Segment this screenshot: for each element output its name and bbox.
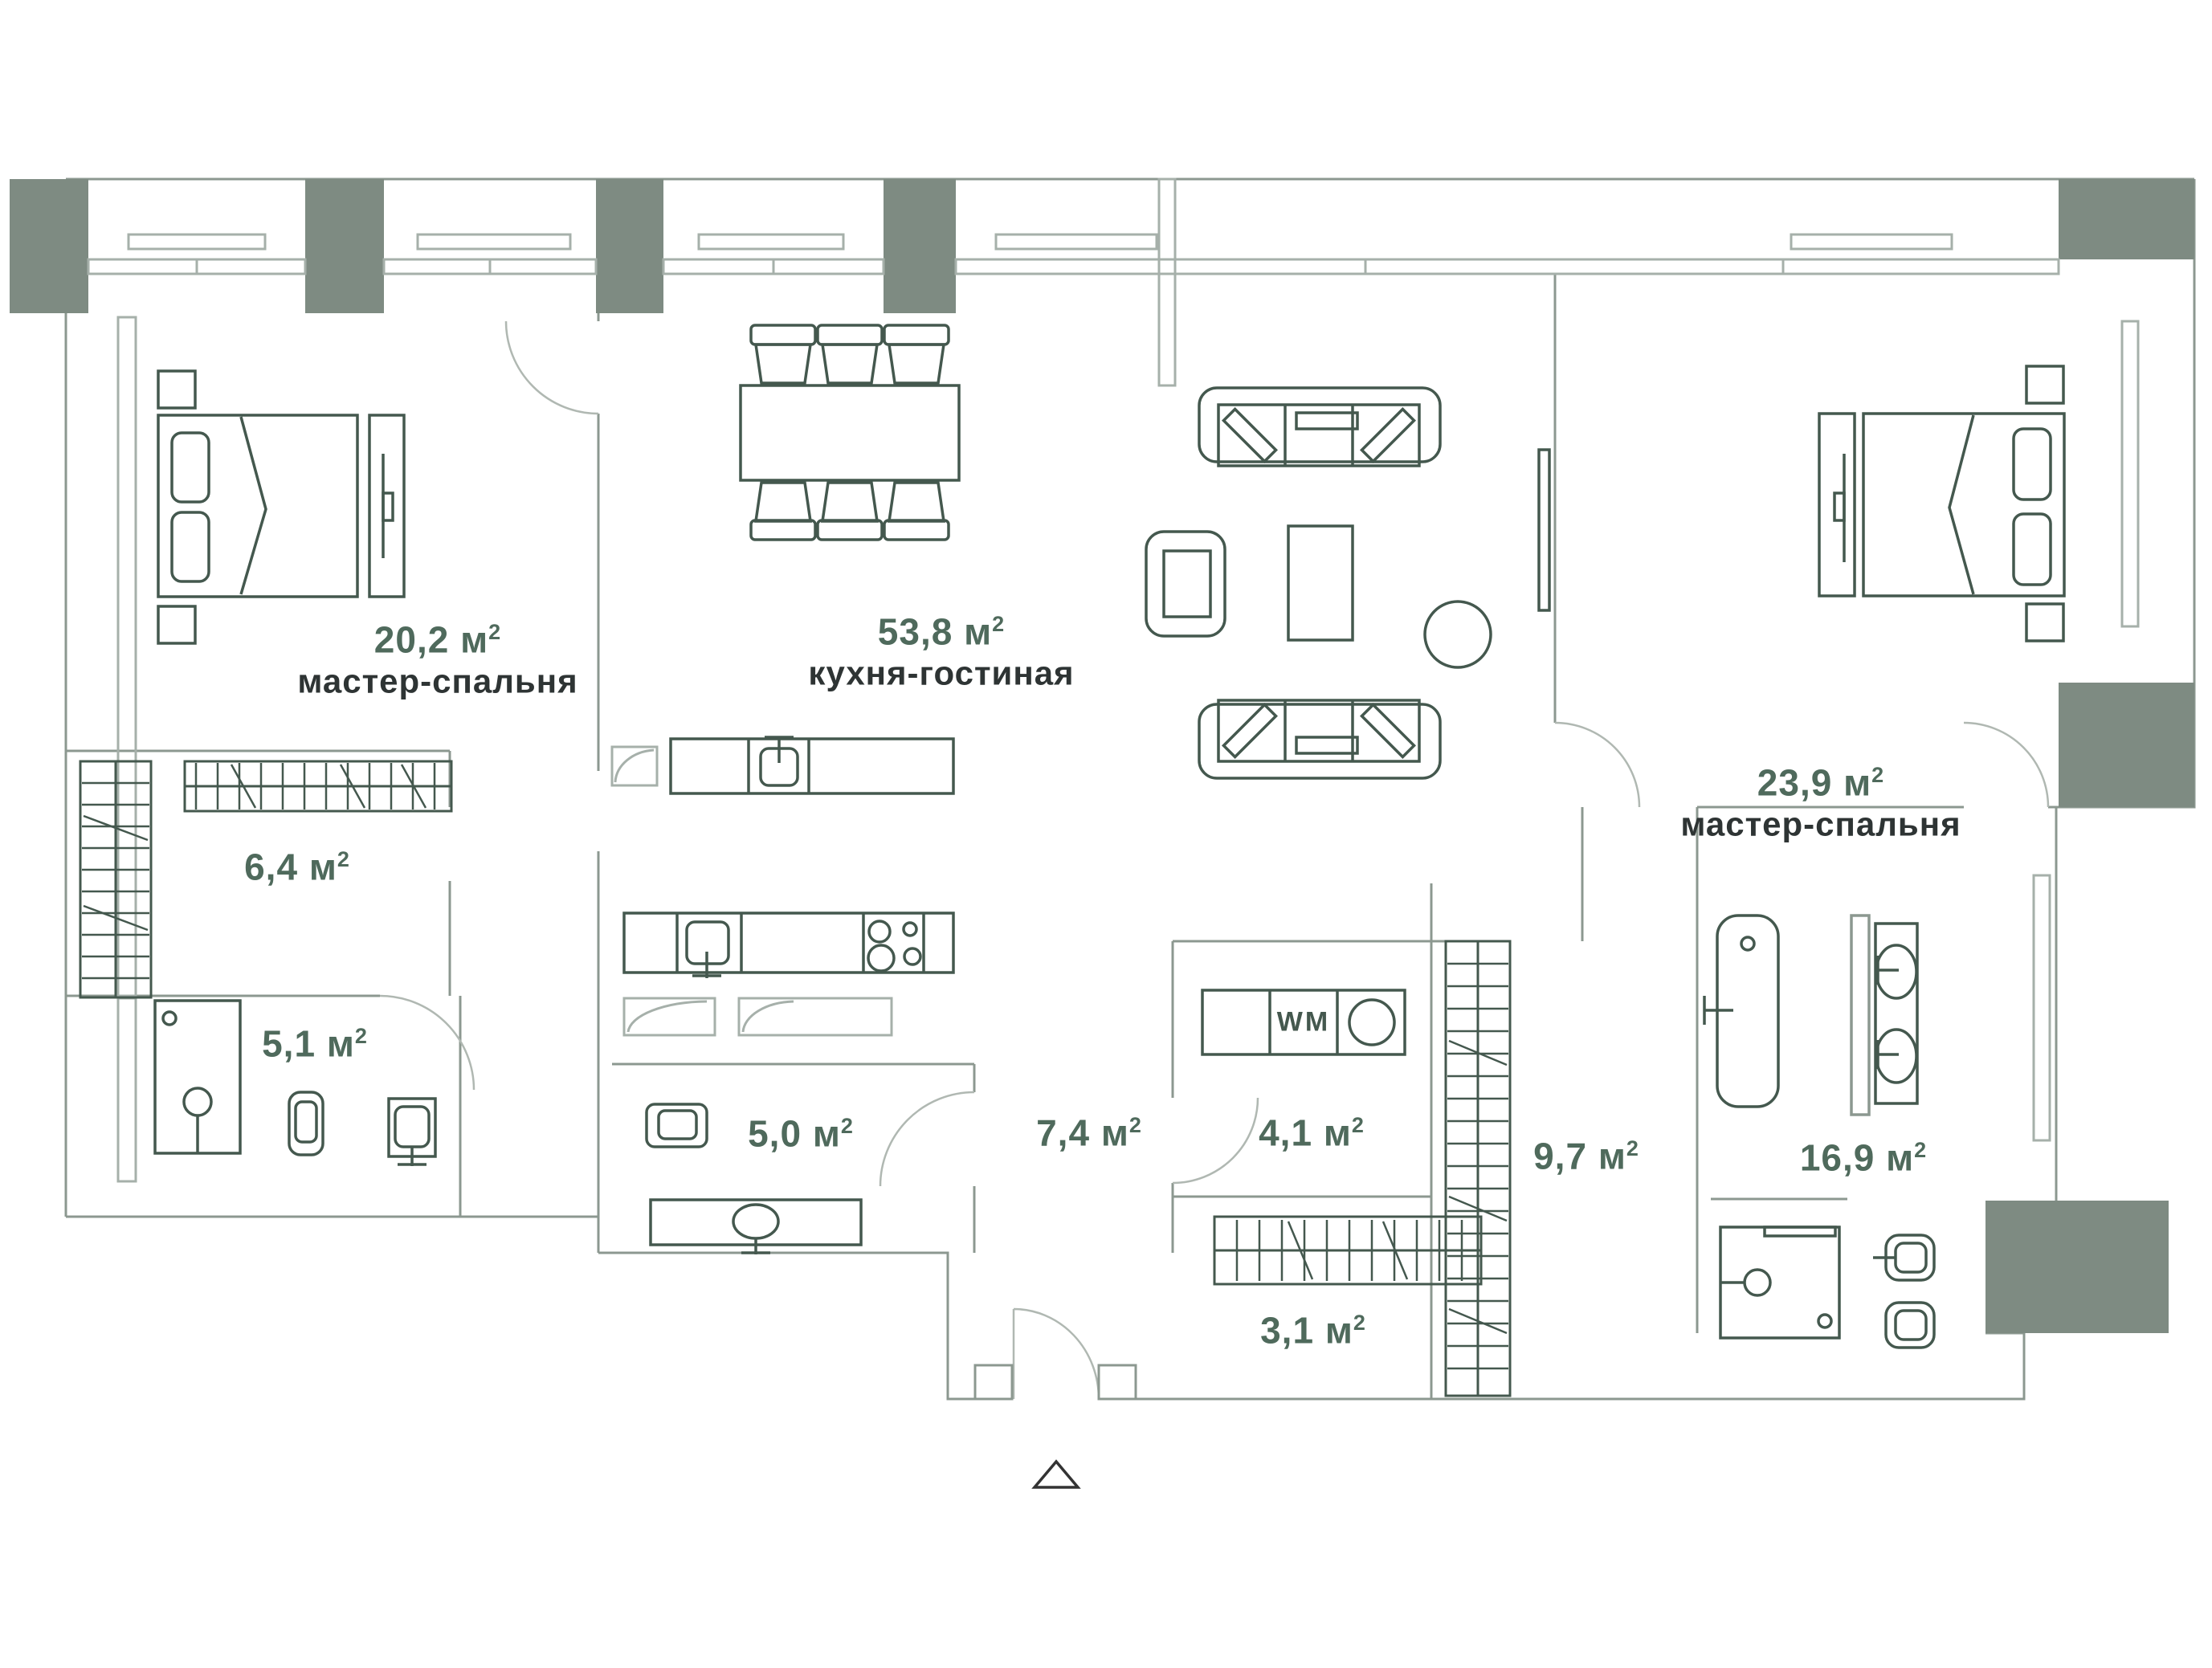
pillar	[305, 179, 384, 313]
window-left	[118, 317, 136, 996]
entrance-door-stubs	[975, 1365, 1136, 1399]
vanity	[651, 1200, 861, 1254]
pillow	[172, 433, 209, 502]
pillar	[2059, 683, 2194, 807]
washing-machine-label: WM	[1277, 1007, 1330, 1038]
drain	[163, 1012, 176, 1025]
floor-plan-svg	[0, 0, 2212, 1668]
shower-head	[184, 1088, 211, 1115]
blanket-fold	[1949, 415, 1973, 594]
chair	[884, 325, 949, 383]
nightstand	[2026, 604, 2063, 641]
double-bed	[158, 415, 357, 597]
window-band	[956, 259, 2059, 274]
door-bathroom-50	[880, 1092, 974, 1186]
chair	[884, 483, 949, 540]
kitchen-counter	[624, 913, 953, 978]
pillar	[10, 179, 88, 313]
window-sill	[129, 234, 265, 249]
sink	[389, 1099, 435, 1166]
sink-basin	[1876, 1030, 1916, 1083]
pillow	[2014, 514, 2051, 585]
dresser	[369, 415, 404, 597]
pillow	[172, 512, 209, 581]
window-mullion	[1159, 179, 1175, 385]
tv	[1539, 450, 1549, 610]
bedroom-right-furniture	[1819, 366, 2064, 641]
toilet	[289, 1092, 323, 1155]
shower-head	[1745, 1270, 1770, 1295]
blanket-fold	[241, 417, 266, 594]
double-bed	[1863, 414, 2064, 596]
kitchen-cabinets	[612, 747, 892, 1035]
bidet	[1886, 1303, 1934, 1348]
door-bedroom-left	[506, 321, 598, 414]
door-entrance	[1014, 1309, 1099, 1399]
faucet	[1878, 1040, 1899, 1069]
nightstand	[158, 606, 195, 643]
windows	[88, 179, 2138, 1181]
dresser	[1819, 414, 1855, 596]
shower-shelf	[1765, 1227, 1835, 1236]
door-laundry	[1173, 1098, 1258, 1183]
pillar	[2059, 179, 2194, 259]
window-sill	[996, 234, 1157, 249]
sofa	[1199, 388, 1440, 466]
wardrobe-closet-31	[1214, 1217, 1481, 1284]
faucet	[1878, 956, 1899, 985]
pillow	[2014, 429, 2051, 500]
floor-plan: 20,2 м2 мастер-спальня 53,8 м2 кухня-гос…	[0, 0, 2212, 1668]
vanity-panel	[1851, 916, 1869, 1115]
side-table	[1425, 602, 1491, 667]
outer-walls	[66, 179, 2194, 1399]
nightstand	[2026, 366, 2063, 403]
kitchen-island	[671, 737, 953, 793]
chair	[751, 325, 815, 383]
nightstand	[158, 371, 195, 408]
coffee-table	[1288, 526, 1353, 640]
wardrobe-64-top	[185, 761, 451, 811]
drain	[1818, 1315, 1831, 1327]
bedroom-left-furniture	[158, 371, 404, 643]
pillar	[596, 179, 663, 313]
sofa	[1199, 700, 1440, 778]
window-sill	[418, 234, 570, 249]
master-bathroom-fixtures	[1704, 916, 1934, 1348]
interior-walls	[66, 274, 2056, 1399]
entrance-marker	[1035, 1462, 1078, 1487]
window-left-lower	[118, 998, 136, 1181]
dining-set	[741, 325, 959, 540]
bathroom-left-fixtures	[155, 1001, 435, 1166]
pillar	[884, 179, 956, 313]
chair	[818, 483, 882, 540]
pillar	[1985, 1201, 2169, 1333]
window-sill	[699, 234, 843, 249]
structural-pillars	[10, 179, 2194, 1333]
sink-basin	[733, 1205, 778, 1238]
washing-machine-drum	[1349, 1000, 1394, 1045]
faucet	[1704, 996, 1733, 1025]
faucet	[765, 737, 794, 763]
wardrobe-corridor-97	[1446, 941, 1510, 1396]
chair	[751, 483, 815, 540]
window-right-bedroom	[2122, 321, 2138, 626]
armchair	[1146, 532, 1225, 636]
window-sill	[1791, 234, 1952, 249]
toilet	[647, 1104, 707, 1147]
wardrobes	[80, 761, 1510, 1396]
bathroom-guest-fixtures	[647, 1104, 861, 1254]
cooktop	[868, 921, 920, 971]
door-living-passage	[1555, 723, 1639, 807]
window-right-bathroom	[2034, 875, 2050, 1140]
sink-basin	[1876, 945, 1916, 998]
drain	[1741, 937, 1754, 950]
living-room-furniture	[1146, 388, 1549, 778]
door-bedroom-right	[1964, 723, 2048, 807]
dining-table	[741, 385, 959, 480]
chair	[818, 325, 882, 383]
toilet	[1873, 1235, 1934, 1280]
wardrobe-64-left	[80, 761, 151, 997]
